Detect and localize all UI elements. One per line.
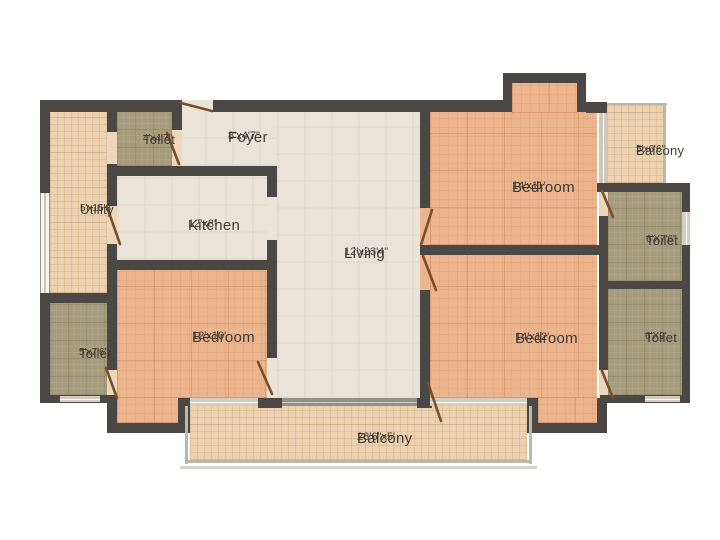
vent-toilet-top-left <box>107 132 117 164</box>
threshold-toilet-bottom-left <box>107 370 117 398</box>
wall-utility-right-a <box>107 100 117 132</box>
window-utility <box>40 193 50 297</box>
threshold-living-bedroom-br <box>420 255 430 290</box>
room-dims: 5'x6'6" <box>636 144 665 155</box>
room-bedroom-bottom-left-ext <box>117 398 178 423</box>
wall-toilet-ru-left <box>599 216 608 281</box>
balcony-tr-frame-top <box>607 103 667 105</box>
balcony-frame-bottom <box>185 460 532 463</box>
post-balcony-far-left <box>178 398 190 433</box>
room-dims: 28'6"x5' <box>357 431 395 443</box>
room-bedroom-bottom-right-ext <box>538 398 597 423</box>
wall-kitchen-bottom <box>107 260 277 270</box>
window-bedroom-br-balcony <box>430 398 527 406</box>
wall-toilet-tl-right <box>172 100 182 130</box>
window-toilet-rl <box>645 396 680 402</box>
balcony-frame-right <box>529 406 532 464</box>
room-dims: 14'x11' <box>512 180 545 192</box>
wall-left-lower <box>40 297 50 403</box>
threshold-living-bedroom-bl <box>267 358 277 398</box>
threshold-kitchen-living <box>267 197 277 240</box>
wall-toilet-divider <box>599 281 690 289</box>
wall-bedroom-tr-left <box>420 112 430 208</box>
balcony-frame-left <box>185 406 188 464</box>
wall-foyer-kitchen <box>107 166 277 176</box>
window-toilet-bl <box>60 396 100 402</box>
room-dims: 5'x15'3" <box>80 203 115 214</box>
threshold-entry <box>178 100 213 112</box>
wall-left-upper <box>40 100 50 193</box>
wall-bedroom-br-bottom <box>538 423 607 433</box>
wall-toilet-rl-left <box>599 289 608 370</box>
room-dims: 6'X7'6" <box>646 234 677 245</box>
floor-plan: Utility 5'x15'3" Toilet 4'x4'7" Foyer 8'… <box>0 0 720 540</box>
wall-kitchen-living <box>267 240 277 358</box>
balcony-frame-outer <box>180 466 537 469</box>
room-dims: 12'x23'4" <box>344 246 388 258</box>
wall-utility-bottom <box>40 293 117 303</box>
room-bedroom-bottom-right-floor <box>430 255 597 398</box>
wall-bedroom-br-left <box>420 290 430 398</box>
wall-top-mid <box>213 100 506 112</box>
room-dims: 12'x10' <box>192 330 226 342</box>
wall-bedroom-bl-bottom <box>107 423 178 433</box>
threshold-living-bedroom-tr <box>420 208 430 245</box>
wall-right-outer-a <box>682 183 690 212</box>
wall-right-outer-b <box>682 245 690 403</box>
room-dims: 4'x4'7" <box>143 133 172 144</box>
wall-top-right <box>586 102 607 113</box>
window-toilet-ru <box>682 212 690 245</box>
sliding-door-bedroom-balcony <box>599 113 607 183</box>
post-balcony-left <box>258 398 282 408</box>
room-dims: 6'X9' <box>645 331 667 342</box>
wall-kitchen-stub <box>267 176 277 197</box>
wall-bedroom-divider <box>420 245 607 255</box>
threshold-toilet-right-upper <box>599 192 608 216</box>
wall-bay-right <box>577 73 586 112</box>
room-dims: 14'x12' <box>515 331 549 343</box>
wall-bay-top <box>503 73 586 83</box>
room-dims: 5'x7'6" <box>79 347 108 358</box>
threshold-toilet-right-lower <box>599 370 608 398</box>
window-bedroom-bl-balcony <box>190 398 258 406</box>
wall-balcony-toilet <box>597 183 690 192</box>
room-bedroom-top-right-bay <box>512 83 577 113</box>
room-dims: 8'x4'7" <box>228 130 260 142</box>
sliding-door-living-balcony <box>282 398 417 406</box>
room-dims: 12'x8' <box>188 218 216 230</box>
